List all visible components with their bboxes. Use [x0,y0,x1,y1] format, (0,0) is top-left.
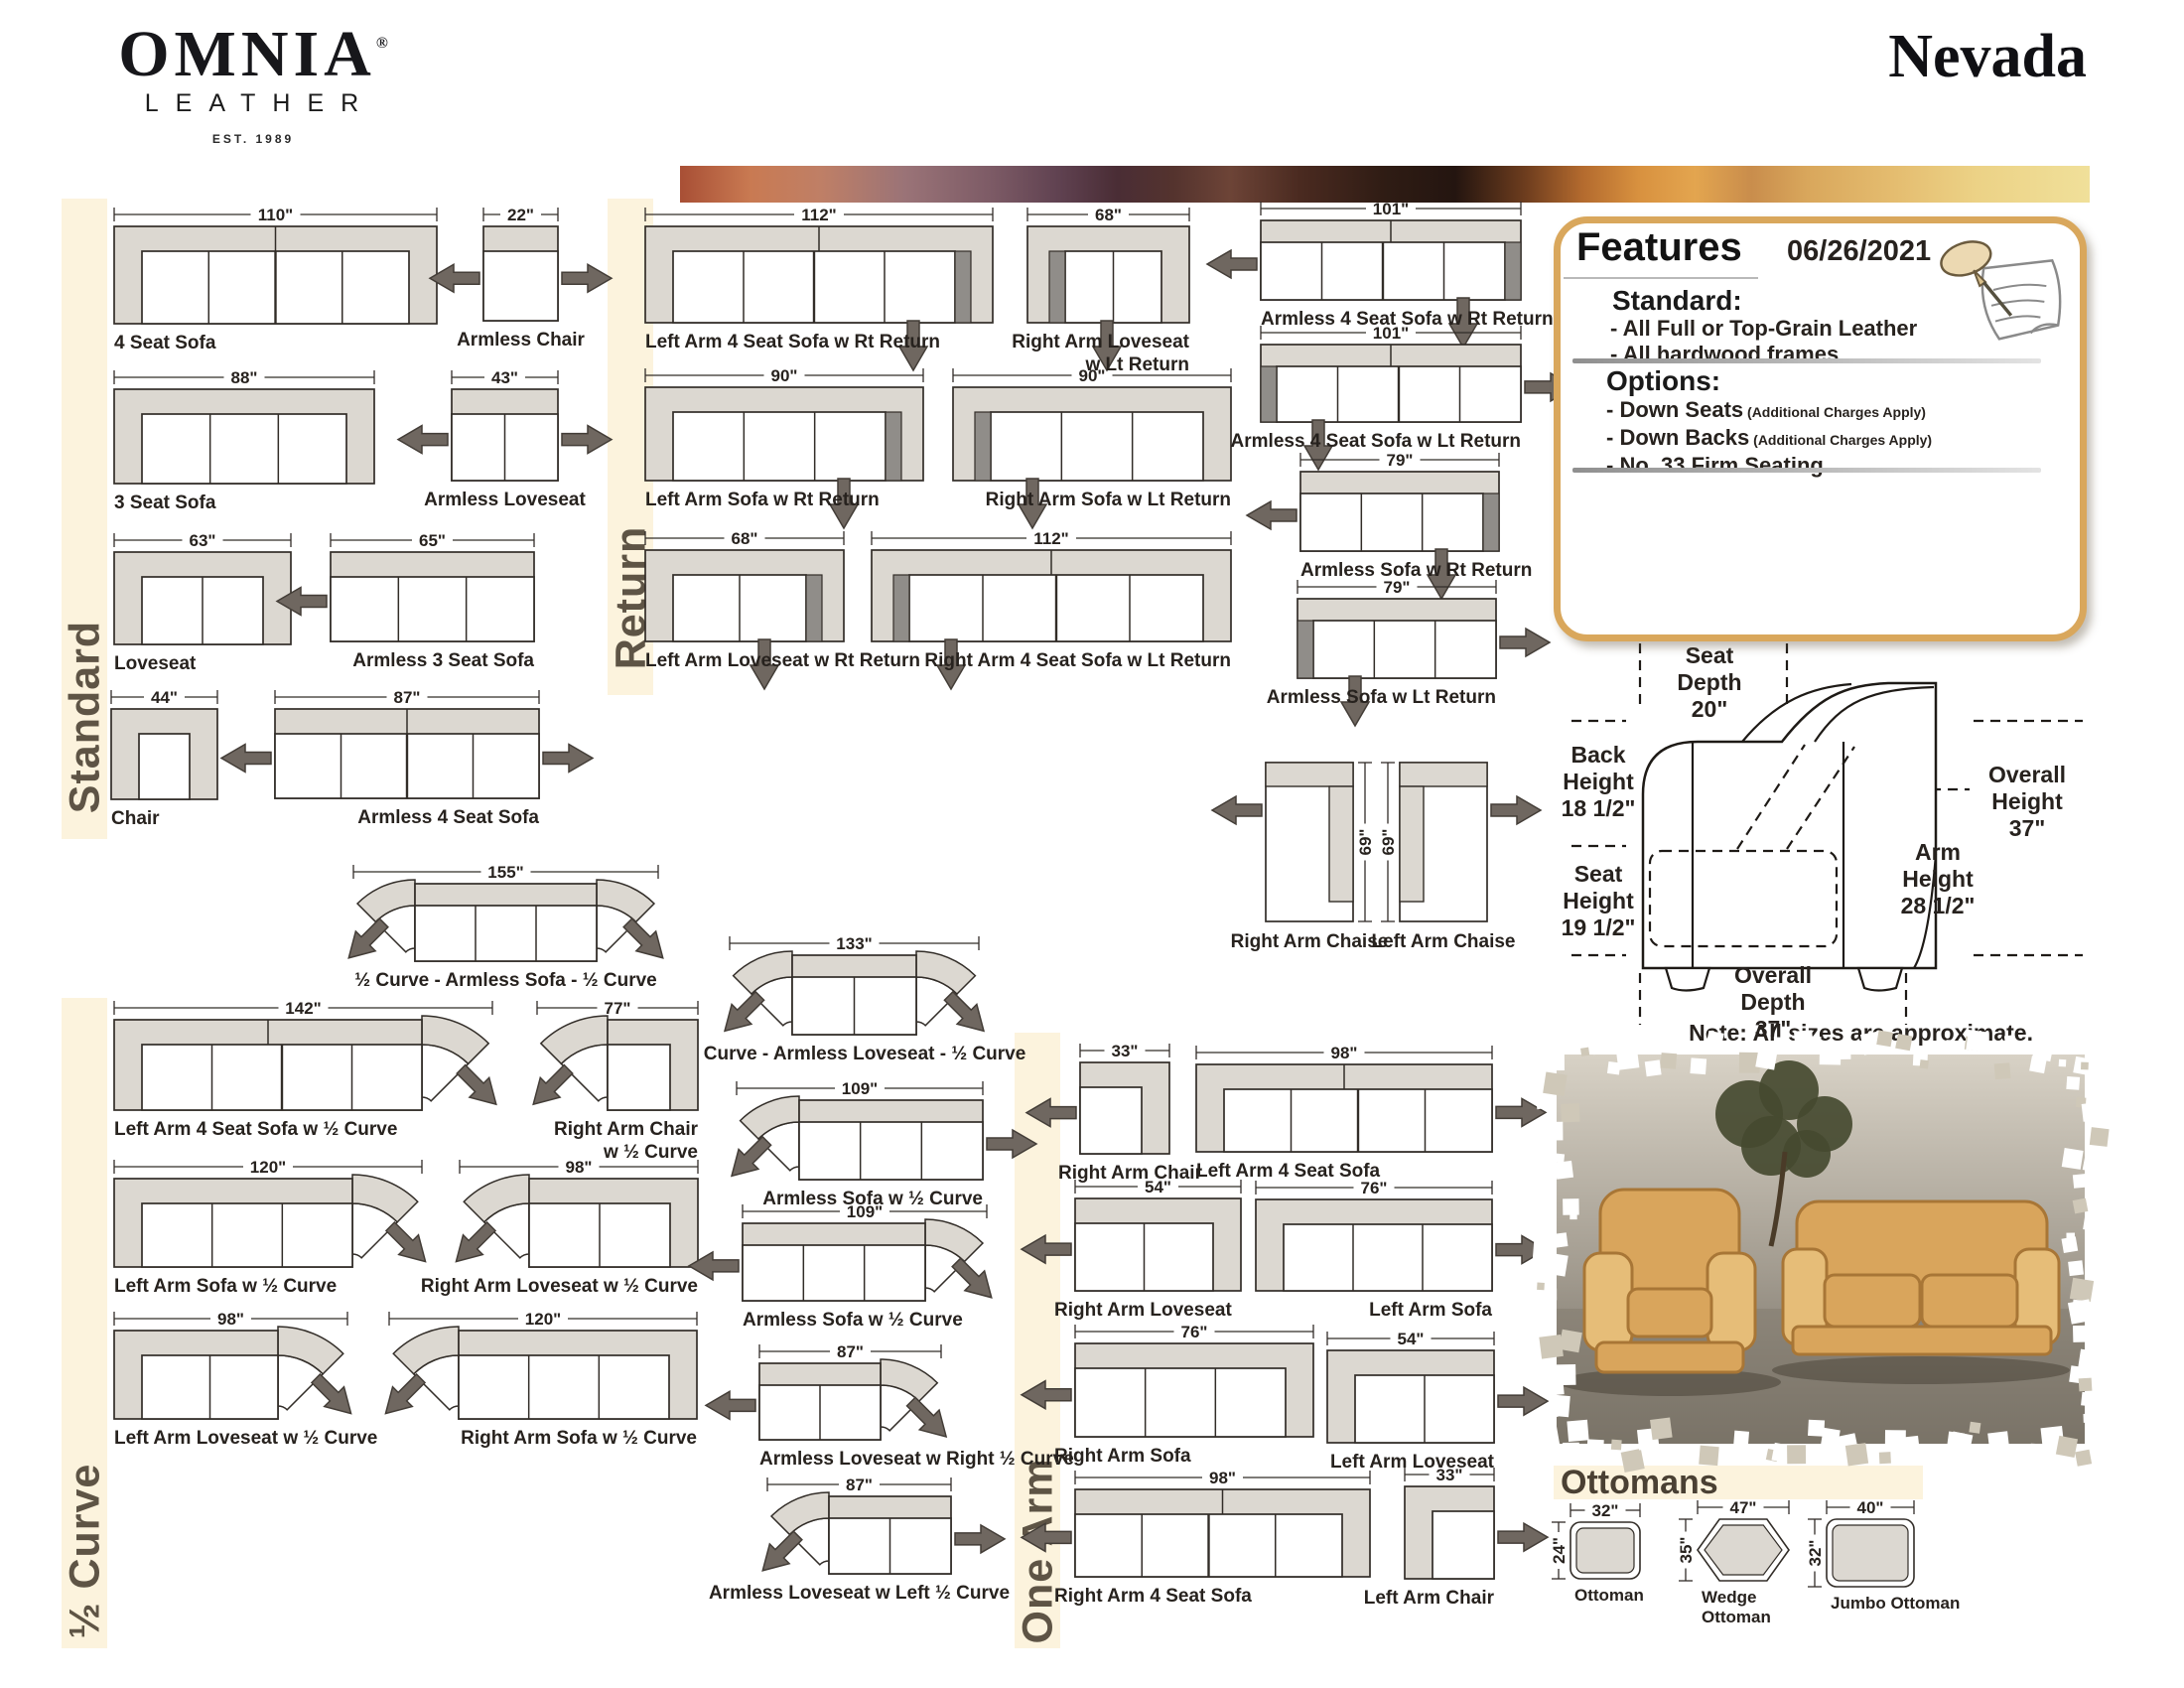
svg-text:Right Arm Loveseat: Right Arm Loveseat [1054,1300,1232,1321]
dimension-line: 40" [1827,1498,1914,1517]
svg-text:90": 90" [771,366,798,385]
dimension-line: 112" [872,529,1231,548]
svg-text:110": 110" [258,206,294,224]
svg-text:Armless 4 Seat Sofa w Lt Retur: Armless 4 Seat Sofa w Lt Return [1231,431,1521,452]
svg-text:133": 133" [836,934,872,953]
svg-text:Right Arm Sofa: Right Arm Sofa [1054,1446,1191,1467]
dimension-line: 98" [1075,1469,1370,1487]
connect-arrow [398,426,448,454]
dimension-line: 44" [111,688,217,707]
svg-text:142": 142" [285,999,321,1018]
svg-text:33": 33" [1112,1042,1139,1060]
item-armless-loveseat-w-right-curve-30: 87"Armless Loveseat w Right ½ Curve [706,1342,1074,1470]
svg-text:98": 98" [217,1310,244,1329]
connect-arrow [1212,796,1262,824]
svg-text:88": 88" [231,368,258,387]
dimension-line: 54" [1327,1330,1494,1348]
dimension-line: 65" [331,531,534,550]
svg-text:47": 47" [1730,1498,1757,1517]
feature-option-item: - Down Backs (Additional Charges Apply) [1606,425,1932,453]
svg-text:Left Arm Sofa: Left Arm Sofa [1369,1300,1492,1321]
svg-text:Right Arm Chaise: Right Arm Chaise [1231,931,1389,952]
dimension-line: 63" [114,531,291,550]
connect-arrow [1207,250,1257,278]
svg-text:Left Arm Loveseat w ½ Curve: Left Arm Loveseat w ½ Curve [114,1428,377,1449]
item-right-arm-sofa-w-lt-return-11: 90"Right Arm Sofa w Lt Return [953,366,1231,528]
dimension-line: 77" [537,999,698,1018]
svg-text:Left Arm 4 Seat Sofa: Left Arm 4 Seat Sofa [1196,1161,1381,1182]
item-armless-chair-1: 22"Armless Chair [430,206,612,351]
svg-text:109": 109" [847,1202,883,1221]
connect-arrow [562,426,612,454]
svg-text:Left Arm Chair: Left Arm Chair [1364,1588,1495,1609]
item-left-arm-sofa-35: 76"Left Arm Sofa [1256,1179,1546,1321]
connect-arrow [1247,501,1297,529]
svg-text:Armless Loveseat w Right ½ Cur: Armless Loveseat w Right ½ Curve [759,1449,1074,1470]
svg-text:Left Arm Sofa w Rt Return: Left Arm Sofa w Rt Return [645,490,880,510]
spec-sheet-page: OMNIA® LEATHER EST. 1989 Nevada Standard… [0,0,2184,1688]
svg-text:Right Arm Chair: Right Arm Chair [1058,1163,1203,1184]
svg-text:76": 76" [1181,1323,1208,1341]
item-left-arm-sofa-w-curve-24: 120"Left Arm Sofa w ½ Curve [114,1158,435,1297]
item-armless-4-seat-sofa-w-lt-return-15: 101"Armless 4 Seat Sofa w Lt Return [1231,324,1574,470]
svg-text:24": 24" [1550,1537,1569,1564]
item-armless-sofa-w-curve-29: 109"Armless Sofa w ½ Curve [689,1202,1002,1331]
svg-text:33": 33" [1436,1466,1463,1484]
item-left-arm-4-seat-sofa-w-rt-return-8: 112"Left Arm 4 Seat Sofa w Rt Return [645,206,993,370]
svg-text:Chair: Chair [111,808,160,829]
connect-arrow [1498,1523,1548,1551]
svg-text:68": 68" [732,529,758,548]
svg-text:Ottoman: Ottoman [1574,1586,1644,1605]
product-photo [1533,1030,2110,1473]
dimension-line: 24" [1550,1522,1569,1579]
svg-text:Right Arm Sofa w Lt Return: Right Arm Sofa w Lt Return [986,490,1231,510]
dimension-line: 90" [953,366,1231,385]
svg-text:98": 98" [1331,1044,1358,1062]
item-armless-sofa-w-curve-28: 109"Armless Sofa w ½ Curve [722,1079,1036,1209]
svg-text:77": 77" [605,999,631,1018]
svg-text:Left Arm Loveseat w Rt Return: Left Arm Loveseat w Rt Return [645,650,920,671]
svg-text:65": 65" [419,531,446,550]
features-title: Features [1576,225,1742,270]
item-curve-armless-loveseat-curve-21: 133"½ Curve - Armless Loveseat - ½ Curve [683,934,1026,1064]
item-right-arm-chaise-18: 69"Right Arm Chaise [1212,763,1388,952]
feature-option-item: - Down Seats (Additional Charges Apply) [1606,397,1932,425]
item-left-arm-loveseat-37: 54"Left Arm Loveseat [1327,1330,1548,1473]
item-armless-loveseat-w-left-curve-31: 87"Armless Loveseat w Left ½ Curve [709,1476,1010,1604]
svg-text:Loveseat: Loveseat [114,653,197,674]
svg-text:½ Curve - Armless Loveseat - ½: ½ Curve - Armless Loveseat - ½ Curve [683,1044,1026,1064]
svg-text:63": 63" [190,531,216,550]
dimension-line: 101" [1261,200,1521,218]
item-chair-6: 44"Chair [111,688,217,829]
dimension-line: 22" [483,206,558,224]
svg-text:Left Arm 4 Seat Sofa w Rt Retu: Left Arm 4 Seat Sofa w Rt Return [645,332,940,352]
svg-text:w ½ Curve: w ½ Curve [603,1142,698,1163]
dimension-line: 155" [353,863,658,882]
features-divider [1572,468,2041,473]
svg-text:32": 32" [1806,1540,1825,1567]
svg-text:79": 79" [1384,578,1411,597]
svg-text:54": 54" [1145,1178,1171,1196]
svg-text:3 Seat Sofa: 3 Seat Sofa [114,492,216,513]
dimension-line: 68" [645,529,844,548]
dimension-line: 32" [1806,1519,1825,1587]
svg-text:69": 69" [1356,829,1375,856]
svg-text:Left Arm Chaise: Left Arm Chaise [1372,931,1516,952]
svg-text:Armless Sofa w Rt Return: Armless Sofa w Rt Return [1300,560,1532,581]
dimension-line: 79" [1300,451,1499,470]
connect-arrow [706,1391,755,1419]
connect-arrow [543,745,593,773]
svg-text:Armless Loveseat w Left ½ Curv: Armless Loveseat w Left ½ Curve [709,1583,1010,1604]
feature-option-item: - No. 33 Firm Seating [1606,453,1932,481]
svg-text:112": 112" [801,206,837,224]
svg-text:½ Curve - Armless Sofa - ½ Cur: ½ Curve - Armless Sofa - ½ Curve [354,970,656,991]
svg-text:Left Arm Loveseat: Left Arm Loveseat [1330,1452,1495,1473]
connect-arrow [1500,629,1550,656]
dimension-line: 69" [1356,763,1375,921]
item-armless-loveseat-3: 43"Armless Loveseat [398,368,612,510]
dimension-line: 33" [1080,1042,1169,1060]
svg-text:Right Arm Loveseat: Right Arm Loveseat [1012,332,1189,352]
dimension-line: 69" [1379,763,1398,921]
dimension-line: 120" [114,1158,422,1177]
svg-text:Left Arm 4 Seat Sofa w ½ Curve: Left Arm 4 Seat Sofa w ½ Curve [114,1119,397,1140]
side-view-label-overall-height: OverallHeight37" [1988,762,2066,841]
svg-text:87": 87" [394,688,421,707]
svg-text:90": 90" [1079,366,1106,385]
svg-text:Right Arm 4 Seat Sofa: Right Arm 4 Seat Sofa [1054,1586,1252,1607]
svg-text:22": 22" [507,206,534,224]
item-right-arm-chair-32: 33"Right Arm Chair [1026,1042,1203,1184]
svg-text:Right Arm 4 Seat Sofa w Lt Ret: Right Arm 4 Seat Sofa w Lt Return [924,650,1231,671]
connect-arrow [987,1130,1036,1158]
item-armless-sofa-w-rt-return-16: 79"Armless Sofa w Rt Return [1247,451,1532,599]
item-left-arm-sofa-w-rt-return-10: 90"Left Arm Sofa w Rt Return [645,366,923,528]
svg-text:120": 120" [525,1310,561,1329]
svg-text:87": 87" [846,1476,873,1494]
features-divider [1572,358,2041,363]
item-curve-armless-sofa-curve-20: 155"½ Curve - Armless Sofa - ½ Curve [339,863,672,991]
connect-arrow [221,745,271,773]
svg-text:Armless 4 Seat Sofa: Armless 4 Seat Sofa [357,807,539,828]
dimension-line: 68" [1027,206,1189,224]
svg-text:Right Arm Sofa w ½ Curve: Right Arm Sofa w ½ Curve [461,1428,697,1449]
pushpin-note-icon [1915,229,2072,351]
svg-text:Armless Sofa w ½ Curve: Armless Sofa w ½ Curve [743,1310,963,1331]
features-options-heading: Options: [1606,365,1720,397]
side-view-label-seat-height: SeatHeight19 1/2" [1562,861,1636,940]
connect-arrow [1491,796,1541,824]
dimension-line: 87" [759,1342,941,1361]
item-right-arm-4-seat-sofa-38: 98"Right Arm 4 Seat Sofa [1022,1469,1370,1607]
ottoman-ottoman: 32"24"Ottoman [1550,1501,1644,1605]
connect-arrow [1022,1381,1071,1409]
svg-text:69": 69" [1379,829,1398,856]
side-view-label-back-height: BackHeight18 1/2" [1562,742,1636,821]
item-armless-3-seat-sofa-5: 65"Armless 3 Seat Sofa [277,531,534,671]
connect-arrow [1026,1099,1076,1127]
connect-arrow [1022,1523,1071,1551]
svg-text:155": 155" [487,863,523,882]
side-view-dimensions: SeatDepth20"BackHeight18 1/2"SeatHeight1… [1562,642,2083,1046]
item-right-arm-loveseat-34: 54"Right Arm Loveseat [1022,1178,1241,1321]
svg-text:101": 101" [1373,324,1409,343]
ottoman-jumbo-ottoman: 40"32"Jumbo Ottoman [1806,1498,1960,1613]
feature-standard-item: - All hardwood frames [1610,342,1917,367]
dimension-line: 47" [1698,1498,1789,1517]
dimension-line: 98" [1196,1044,1492,1062]
svg-text:44": 44" [151,688,178,707]
svg-text:98": 98" [1209,1469,1236,1487]
svg-text:112": 112" [1033,529,1069,548]
svg-text:76": 76" [1361,1179,1388,1197]
dimension-line: 76" [1075,1323,1313,1341]
svg-text:68": 68" [1095,206,1122,224]
item-left-arm-4-seat-sofa-33: 98"Left Arm 4 Seat Sofa [1196,1044,1546,1182]
item-left-arm-loveseat-w-curve-26: 98"Left Arm Loveseat w ½ Curve [114,1310,377,1449]
dimension-line: 142" [114,999,492,1018]
dimension-line: 133" [730,934,979,953]
svg-text:Jumbo Ottoman: Jumbo Ottoman [1831,1594,1960,1613]
dimension-line: 98" [114,1310,347,1329]
dimension-line: 87" [275,688,539,707]
dimension-line: 87" [767,1476,951,1494]
item-armless-4-seat-sofa-7: 87"Armless 4 Seat Sofa [221,688,593,828]
ottoman-wedgeottoman: 47"35"WedgeOttoman [1677,1498,1789,1626]
feature-standard-item: - All Full or Top-Grain Leather [1610,316,1917,342]
item-3-seat-sofa-2: 88"3 Seat Sofa [114,368,374,513]
svg-text:Armless 3 Seat Sofa: Armless 3 Seat Sofa [352,650,534,671]
svg-text:101": 101" [1373,200,1409,218]
svg-text:120": 120" [250,1158,286,1177]
svg-text:Wedge: Wedge [1702,1588,1756,1607]
svg-text:Armless Loveseat: Armless Loveseat [424,490,586,510]
item-left-arm-4-seat-sofa-w-curve-22: 142"Left Arm 4 Seat Sofa w ½ Curve [114,999,506,1140]
dimension-line: 112" [645,206,993,224]
item-right-arm-loveseat-w-curve-25: 98"Right Arm Loveseat w ½ Curve [421,1158,698,1297]
connect-arrow [955,1525,1005,1553]
item-right-arm-chair-23: 77"Right Arm Chairw ½ Curve [523,999,698,1163]
features-date: 06/26/2021 [1787,235,1931,268]
side-view-label-seat-depth: SeatDepth20" [1677,642,1741,722]
svg-text:40": 40" [1857,1498,1884,1517]
dimension-line: 88" [114,368,374,387]
connect-arrow [562,264,612,292]
svg-text:35": 35" [1677,1537,1696,1564]
item-right-arm-loveseat-9: 68"Right Arm Loveseatw Lt Return [1012,206,1189,375]
svg-text:109": 109" [842,1079,878,1098]
item-left-arm-chaise-19: 69"Left Arm Chaise [1372,763,1542,952]
svg-text:32": 32" [1592,1501,1619,1520]
item-loveseat-4: 63"Loveseat [114,531,291,674]
svg-text:87": 87" [837,1342,864,1361]
dimension-line: 90" [645,366,923,385]
svg-text:Left Arm Sofa w ½ Curve: Left Arm Sofa w ½ Curve [114,1276,337,1297]
item-armless-sofa-w-lt-return-17: 79"Armless Sofa w Lt Return [1267,578,1550,726]
svg-text:79": 79" [1387,451,1414,470]
svg-text:Right Arm Loveseat w ½ Curve: Right Arm Loveseat w ½ Curve [421,1276,698,1297]
item-left-arm-chair-39: 33"Left Arm Chair [1364,1466,1548,1609]
features-standard-heading: Standard: [1612,285,1742,317]
svg-text:Armless Chair: Armless Chair [457,330,585,351]
connect-arrow [1498,1387,1548,1415]
item-right-arm-sofa-36: 76"Right Arm Sofa [1022,1323,1313,1467]
dimension-line: 120" [389,1310,697,1329]
dimension-line: 43" [452,368,558,387]
dimension-line: 35" [1677,1519,1696,1581]
dimension-line: 109" [737,1079,983,1098]
item-right-arm-sofa-w-curve-27: 120"Right Arm Sofa w ½ Curve [376,1310,697,1449]
features-box: Features 06/26/2021 Standard: - All Full… [1554,216,2087,641]
svg-text:4 Seat Sofa: 4 Seat Sofa [114,333,216,353]
svg-text:Armless Sofa w Lt Return: Armless Sofa w Lt Return [1267,687,1496,708]
dimension-line: 110" [114,206,437,224]
svg-text:Ottoman: Ottoman [1702,1608,1771,1626]
features-title-rule [1564,277,1758,279]
connect-arrow [1022,1235,1071,1263]
svg-text:54": 54" [1398,1330,1425,1348]
item-4-seat-sofa-0: 110"4 Seat Sofa [114,206,437,353]
svg-text:43": 43" [491,368,518,387]
dimension-line: 32" [1570,1501,1640,1520]
svg-text:98": 98" [566,1158,593,1177]
svg-text:Right Arm Chair: Right Arm Chair [554,1119,699,1140]
item-right-arm-4-seat-sofa-w-lt-return-13: 112"Right Arm 4 Seat Sofa w Lt Return [872,529,1231,689]
